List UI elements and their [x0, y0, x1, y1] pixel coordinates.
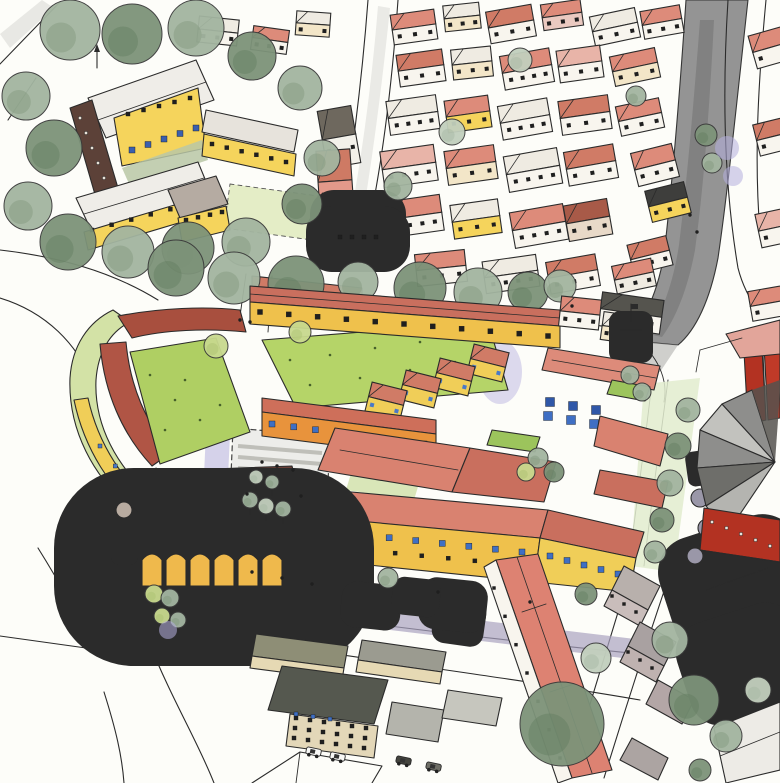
tree: [657, 470, 683, 496]
tree: [148, 240, 204, 296]
market-tower: [118, 514, 131, 558]
town-house-window: [406, 121, 411, 126]
town-house-window: [460, 21, 464, 25]
tree-shade: [678, 407, 690, 419]
town-house-window: [484, 67, 488, 71]
town-house-window: [584, 121, 589, 126]
monastery-windows-pane: [208, 213, 212, 217]
tenement-windows-pane: [364, 726, 368, 730]
monastery-windows-pane: [284, 160, 288, 164]
orange-terrace-windows-pane: [312, 427, 318, 433]
tenement-windows-pane: [307, 728, 311, 732]
town-house-window: [433, 219, 438, 224]
tree-shade: [652, 517, 664, 529]
market-tree-shade: [156, 614, 164, 622]
tree: [689, 759, 711, 781]
red-gable-house-windows-pane: [362, 235, 366, 239]
tree-shade: [32, 141, 60, 169]
solar-panels-pane: [544, 412, 553, 421]
town-house-window: [428, 30, 433, 35]
tenement-windows-blue-pane: [294, 712, 298, 716]
tree: [676, 398, 700, 422]
town-house-window: [557, 229, 562, 234]
tenement-windows-pane: [306, 738, 310, 742]
town-aerial-illustration: [0, 0, 780, 783]
town-house-window: [607, 167, 612, 172]
tree-shade: [547, 282, 563, 298]
top-house-window: [229, 37, 233, 41]
town-house-window: [458, 227, 463, 232]
tenement-windows-pane: [348, 744, 352, 748]
south-terrace-windows-pane: [386, 535, 392, 541]
tower-flag: [631, 304, 638, 309]
town-house-window: [602, 223, 607, 228]
monastery-dormers-pane: [91, 147, 94, 150]
terrace-windows-pane: [517, 331, 522, 336]
monastery-windows-pane: [149, 212, 153, 216]
solar-panels-pane: [546, 398, 555, 407]
tree-shade: [748, 687, 761, 700]
monastery-dormers-pane: [79, 117, 82, 120]
mauve-windows-pane: [639, 659, 642, 662]
tree-shade: [660, 480, 673, 493]
people-dots-dot: [238, 318, 241, 321]
lawn-dots-dot: [374, 347, 377, 350]
monastery-windows-pane: [110, 223, 114, 227]
town-house-window: [654, 119, 659, 124]
town-house-window: [414, 171, 419, 176]
town-house: [443, 2, 482, 32]
mauve-windows-pane: [623, 603, 626, 606]
terrace-windows-pane: [402, 322, 407, 327]
monastery-court-windows-pane: [188, 96, 192, 100]
tree-shade: [174, 21, 202, 49]
lawn-dots-dot: [149, 374, 152, 377]
tree-shade: [704, 161, 714, 171]
top-house-window: [279, 46, 284, 51]
tree: [544, 462, 564, 482]
red-gable-house-windows-pane: [350, 235, 354, 239]
monastery-windows-pane: [220, 210, 224, 214]
monastery-windows-pane: [225, 146, 229, 150]
lawn-dots-dot: [309, 384, 312, 387]
market-arch: [238, 554, 258, 586]
ne-house: [559, 296, 602, 330]
market-tree-shade: [163, 596, 172, 605]
tree-shade: [154, 261, 182, 289]
tenement-windows-pane: [320, 740, 324, 744]
tree: [378, 568, 398, 588]
tree-shade: [442, 129, 455, 142]
town-house-window: [448, 23, 452, 27]
tree-shade: [233, 50, 257, 74]
church-buttresses-pane: [711, 521, 714, 524]
tenement-windows-pane: [293, 726, 297, 730]
town-house-window: [404, 76, 409, 81]
town-house-window: [514, 179, 519, 184]
people-dots-dot: [528, 600, 531, 603]
town-house-window: [518, 126, 523, 131]
monastery-windows-pane: [168, 207, 172, 211]
lawn-dots-dot: [174, 399, 177, 402]
tree: [204, 334, 228, 358]
lawn-dots-dot: [219, 404, 222, 407]
town-house-window: [619, 283, 624, 288]
town-house-window: [594, 67, 599, 72]
town-house-window: [541, 121, 546, 126]
terrace-windows-pane: [488, 329, 493, 334]
terrace-windows-pane: [344, 317, 349, 322]
south-terrace-windows-pane: [393, 551, 397, 555]
south-terrace-windows-pane: [547, 553, 553, 559]
tenement-windows-pane: [349, 734, 353, 738]
lawn-dots-dot: [289, 359, 292, 362]
top-house-window: [299, 27, 303, 31]
town-house: [540, 0, 583, 31]
town-house: [444, 145, 498, 186]
town-house-window: [470, 171, 475, 176]
town-house-window: [504, 280, 509, 285]
tree: [669, 675, 719, 725]
se-terrace-windows-pane: [515, 643, 518, 646]
tree: [621, 366, 639, 384]
ne-house-window: [604, 331, 609, 336]
block-wall-windows-pane: [98, 444, 102, 448]
town-house-window: [398, 34, 403, 39]
tree: [626, 86, 646, 106]
town-house-window: [572, 229, 577, 234]
solar-panels-pane: [590, 420, 599, 429]
se-terrace-windows-pane: [526, 672, 529, 675]
town-house-window: [494, 32, 499, 37]
se-terrace-windows-pane: [504, 615, 507, 618]
tree-shade: [546, 470, 556, 480]
monastery-arches-pane: [161, 136, 167, 142]
lawn-dots-dot: [199, 419, 202, 422]
red-gable-house-windows-pane: [374, 235, 378, 239]
tenement-windows-blue-pane: [328, 717, 332, 721]
tree: [575, 583, 597, 605]
market-tree-shade: [147, 592, 156, 601]
town-house-window: [526, 26, 531, 31]
people-dots-dot: [299, 494, 302, 497]
monastery-arches-pane: [177, 131, 183, 137]
mauve-windows-pane: [651, 667, 654, 670]
lawn-dots-dot: [164, 429, 167, 432]
town-house-window: [661, 26, 666, 31]
monastery-dormers-pane: [85, 132, 88, 135]
tree: [439, 119, 465, 145]
monastery-windows-pane: [254, 153, 258, 157]
tree: [26, 120, 82, 176]
tenement-windows-pane: [294, 716, 298, 720]
ne-house-window: [563, 317, 567, 321]
town-house-window: [567, 123, 572, 128]
tree-shade: [286, 199, 306, 219]
town-house-window: [551, 173, 556, 178]
town-house-window: [639, 122, 644, 127]
town-house-window: [538, 175, 543, 180]
town-house-window: [420, 221, 425, 226]
market-arch: [166, 554, 186, 586]
tree: [695, 124, 717, 146]
market-arch: [190, 554, 210, 586]
town-house-window: [427, 169, 432, 174]
town-house: [558, 95, 612, 136]
town-house: [396, 49, 446, 87]
tree-shade: [635, 390, 644, 399]
south-terrace-windows-pane: [581, 562, 587, 568]
monastery-windows-pane: [210, 142, 214, 146]
hut-gray: [403, 589, 428, 605]
tree: [665, 433, 691, 459]
monastery-windows-pane: [196, 215, 200, 219]
town-house-window: [471, 68, 475, 72]
tenement-windows-pane: [363, 736, 367, 740]
tree: [520, 682, 604, 766]
town-house-window: [561, 19, 566, 24]
tree: [289, 321, 311, 343]
tree: [282, 184, 322, 224]
market-arch: [214, 554, 234, 586]
monastery-dormers-pane: [103, 177, 106, 180]
tree-shade: [674, 694, 699, 719]
block-wall-windows-pane: [113, 464, 117, 468]
solar-panels-pane: [592, 406, 601, 415]
orange-terrace-windows-pane: [291, 424, 297, 430]
top-house-window: [322, 29, 326, 33]
people-dots-dot: [688, 213, 691, 216]
orange-terrace-windows-pane: [269, 421, 275, 427]
ne-house-window: [591, 319, 595, 323]
town-house-window: [587, 226, 592, 231]
tree: [168, 0, 224, 56]
mauve-windows-pane: [627, 651, 630, 654]
town-house-window: [601, 118, 606, 123]
town-house-window: [564, 71, 569, 76]
terrace-windows-pane: [459, 326, 464, 331]
monastery-windows-pane: [240, 149, 244, 153]
hut-gray: [355, 596, 387, 615]
tenement-windows-pane: [322, 720, 326, 724]
town-house-window: [395, 123, 400, 128]
tree: [304, 140, 340, 176]
tree-shade: [713, 732, 729, 748]
south-terrace-windows-pane: [420, 554, 424, 558]
tree-shade: [519, 470, 528, 479]
monastery-windows-pane: [184, 218, 188, 222]
town-house: [450, 199, 502, 239]
south-terrace-windows-pane: [439, 540, 445, 546]
plaza-tree-shade: [250, 475, 257, 482]
south-terrace-windows-pane: [598, 567, 604, 573]
monastery-court-windows-pane: [157, 104, 161, 108]
south-terrace-windows-pane: [473, 559, 477, 563]
lavender-blob: [159, 621, 177, 639]
people-dots-dot: [245, 492, 248, 495]
people-dots-dot: [570, 304, 573, 307]
town-house-window: [467, 119, 472, 124]
town-house-window: [614, 32, 619, 37]
tree: [508, 48, 532, 72]
tree-shade: [697, 132, 708, 143]
south-terrace-windows-pane: [519, 549, 525, 555]
terrace-windows-pane: [546, 334, 551, 339]
town-house-window: [487, 168, 492, 173]
town-house-window: [624, 125, 629, 130]
lavender-blob: [715, 136, 739, 160]
solar-panels-pane: [567, 416, 576, 425]
town-house-window: [573, 174, 578, 179]
town-house-window: [530, 123, 535, 128]
lawn-dots-dot: [419, 341, 422, 344]
tree-shade: [528, 714, 570, 756]
tree: [40, 214, 96, 270]
people-dots-dot: [436, 590, 439, 593]
people-dots-dot: [695, 230, 698, 233]
monastery-windows-pane: [129, 218, 133, 222]
town-house-window: [520, 235, 525, 240]
church-buttresses-pane: [769, 545, 772, 548]
town-house-window: [482, 117, 487, 122]
market-dome: [116, 502, 132, 518]
steep-dark-roof-house-window: [351, 145, 356, 150]
town-house-window: [650, 68, 655, 73]
town-house-window: [633, 280, 638, 285]
tree-shade: [628, 94, 638, 104]
town-house-window: [532, 73, 537, 78]
town-house-window: [475, 225, 480, 230]
tree-shade: [510, 57, 522, 69]
town-house-window: [618, 75, 623, 80]
tree-shade: [691, 767, 702, 778]
lavender-blob: [723, 166, 743, 186]
tree-shade: [7, 90, 31, 114]
tree: [4, 182, 52, 230]
people-dots-dot: [260, 460, 263, 463]
tenement-windows-pane: [350, 724, 354, 728]
people-dots-dot: [310, 582, 313, 585]
tenement-windows-pane: [321, 730, 325, 734]
se-terrace-windows-pane: [493, 587, 496, 590]
tree-shade: [380, 576, 390, 586]
tree-shade: [46, 235, 74, 263]
town-house-window: [413, 32, 418, 37]
monastery-arches-pane: [145, 142, 151, 148]
tree-shade: [584, 654, 599, 669]
town-house: [563, 198, 613, 241]
plaza-tree-shade: [266, 480, 273, 487]
tree-shade: [668, 443, 681, 456]
tenement-windows-blue-pane: [311, 715, 315, 719]
town-house-window: [510, 29, 515, 34]
tree-shade: [9, 200, 33, 224]
tree-shade: [108, 27, 138, 57]
monastery-arches-pane: [129, 147, 135, 153]
solar-panels-pane: [569, 402, 578, 411]
tenement-windows-pane: [336, 722, 340, 726]
tree-shade: [577, 591, 588, 602]
market-arch: [262, 554, 282, 586]
tree: [710, 720, 742, 752]
town-house-window: [491, 222, 496, 227]
tree: [102, 4, 162, 64]
terrace-windows-pane: [373, 319, 378, 324]
tree-shade: [213, 272, 239, 298]
town-house-window: [547, 21, 552, 26]
tree: [228, 32, 276, 80]
people-dots-dot: [291, 468, 294, 471]
red-gable-house-windows-pane: [338, 235, 342, 239]
tree-shade: [291, 329, 302, 340]
tree: [2, 72, 50, 120]
plaza-tree-shade: [260, 504, 268, 512]
monastery-court-windows-pane: [173, 100, 177, 104]
terrace-windows-pane: [286, 312, 291, 317]
edge-house-window: [764, 235, 769, 240]
town-house: [390, 9, 438, 45]
town-house-window: [457, 69, 461, 73]
monastery-arches-pane: [193, 125, 199, 131]
people-dots-dot: [248, 320, 251, 323]
town-house-window: [420, 73, 425, 78]
town-house-window: [544, 231, 549, 236]
tree-shade: [623, 373, 632, 382]
market-arch: [142, 554, 162, 586]
tree: [40, 0, 100, 60]
mauve-windows-pane: [635, 611, 638, 614]
tenement-windows-pane: [292, 736, 296, 740]
town-house-window: [453, 173, 458, 178]
town-house: [451, 46, 494, 80]
town-house-window: [675, 24, 680, 29]
lawn-dots-dot: [359, 377, 362, 380]
tree: [652, 622, 688, 658]
town-house-window: [473, 20, 477, 24]
tree: [517, 463, 535, 481]
church-buttresses-pane: [740, 533, 743, 536]
tenement-windows-pane: [362, 746, 366, 750]
town-house-window: [634, 72, 639, 77]
monastery-dormers-pane: [97, 162, 100, 165]
tree-shade: [512, 287, 532, 307]
town-house-window: [590, 171, 595, 176]
town-house-window: [630, 28, 635, 33]
people-dots-dot: [280, 576, 283, 579]
lawn-dots-dot: [184, 379, 187, 382]
monastery-court-windows-pane: [142, 108, 146, 112]
tree: [633, 383, 651, 401]
tree: [650, 508, 674, 532]
tree-shade: [387, 183, 401, 197]
tree: [278, 66, 322, 110]
town-house: [386, 95, 440, 136]
town-house: [556, 45, 604, 83]
monastery-windows-pane: [269, 156, 273, 160]
town-house-window: [429, 118, 434, 123]
south-terrace-windows-pane: [564, 558, 570, 564]
town-house-window: [520, 76, 525, 81]
church-buttresses-pane: [725, 527, 728, 530]
ne-house-window: [577, 318, 581, 322]
lawn-dots-dot: [329, 354, 332, 357]
terrace-windows-pane: [258, 310, 263, 315]
south-terrace-windows-pane: [413, 538, 419, 544]
south-terrace-windows-pane: [466, 543, 472, 549]
town-house-window: [509, 78, 514, 83]
people-dots-dot: [275, 464, 278, 467]
tree-shade: [308, 154, 326, 172]
